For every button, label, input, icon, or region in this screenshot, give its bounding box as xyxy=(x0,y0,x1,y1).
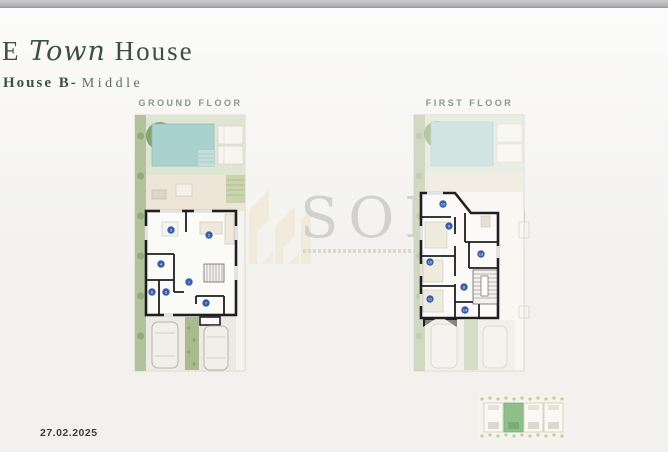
parked-car-left xyxy=(152,322,178,368)
bed xyxy=(425,222,447,248)
issue-date: 27.02.2025 xyxy=(40,427,98,439)
room-number-badge: 2 xyxy=(205,231,213,239)
shower xyxy=(481,216,490,227)
subtitle-unit-position: Middle xyxy=(82,76,143,91)
pool-below xyxy=(431,122,493,166)
room-number-badge: 14 xyxy=(461,306,469,314)
title-script-word: Town xyxy=(29,36,106,67)
subtitle-house-type: House B- xyxy=(3,75,78,91)
room-number-badge: 12 xyxy=(439,200,447,208)
page-title: E Town House xyxy=(2,36,194,67)
outdoor-seating xyxy=(152,190,166,199)
title-prefix: E xyxy=(2,36,21,66)
rear-garden-faded xyxy=(424,115,524,192)
window-top-bar xyxy=(0,0,668,8)
room-number-badge: 5 xyxy=(162,288,170,296)
room-number-badge: 8 xyxy=(460,283,468,291)
room-number-badge: 10 xyxy=(426,258,434,266)
room-number-badge: 7 xyxy=(202,299,210,307)
svg-text:13: 13 xyxy=(479,252,484,257)
svg-text:12: 12 xyxy=(441,202,446,207)
room-number-badge: 6 xyxy=(148,288,156,296)
svg-text:14: 14 xyxy=(463,308,468,313)
room-number-badge: 4 xyxy=(157,260,165,268)
terrace xyxy=(146,175,245,211)
driveway-below-faded xyxy=(425,320,515,370)
kitchen-counter xyxy=(225,214,234,244)
first-floor-plan: 891011121314 xyxy=(407,114,532,378)
staircase xyxy=(204,264,224,282)
outdoor-table xyxy=(176,184,192,196)
title-main-word: House xyxy=(115,36,194,66)
page-subtitle: House B-Middle xyxy=(3,74,143,92)
swimming-pool xyxy=(152,124,214,166)
side-garden-strip xyxy=(135,115,146,371)
driveway-green-strip xyxy=(185,317,199,370)
ground-floor-label: GROUND FLOOR xyxy=(128,98,253,108)
ground-floor-plan: 1234567 xyxy=(128,114,253,378)
room-number-badge: 11 xyxy=(426,295,434,303)
watermark-tagline xyxy=(303,249,415,253)
room-number-badge: 9 xyxy=(445,222,453,230)
first-floor-label: FIRST FLOOR xyxy=(407,98,532,108)
room-number-badge: 3 xyxy=(167,226,175,234)
unit-location-keyplan xyxy=(477,391,569,443)
staircase xyxy=(473,270,497,304)
room-number-badge: 13 xyxy=(477,250,485,258)
pergola xyxy=(226,175,245,203)
svg-text:10: 10 xyxy=(428,260,433,265)
entry-canopy xyxy=(200,317,220,325)
parked-car-right xyxy=(204,326,228,370)
room-number-badge: 1 xyxy=(185,278,193,286)
